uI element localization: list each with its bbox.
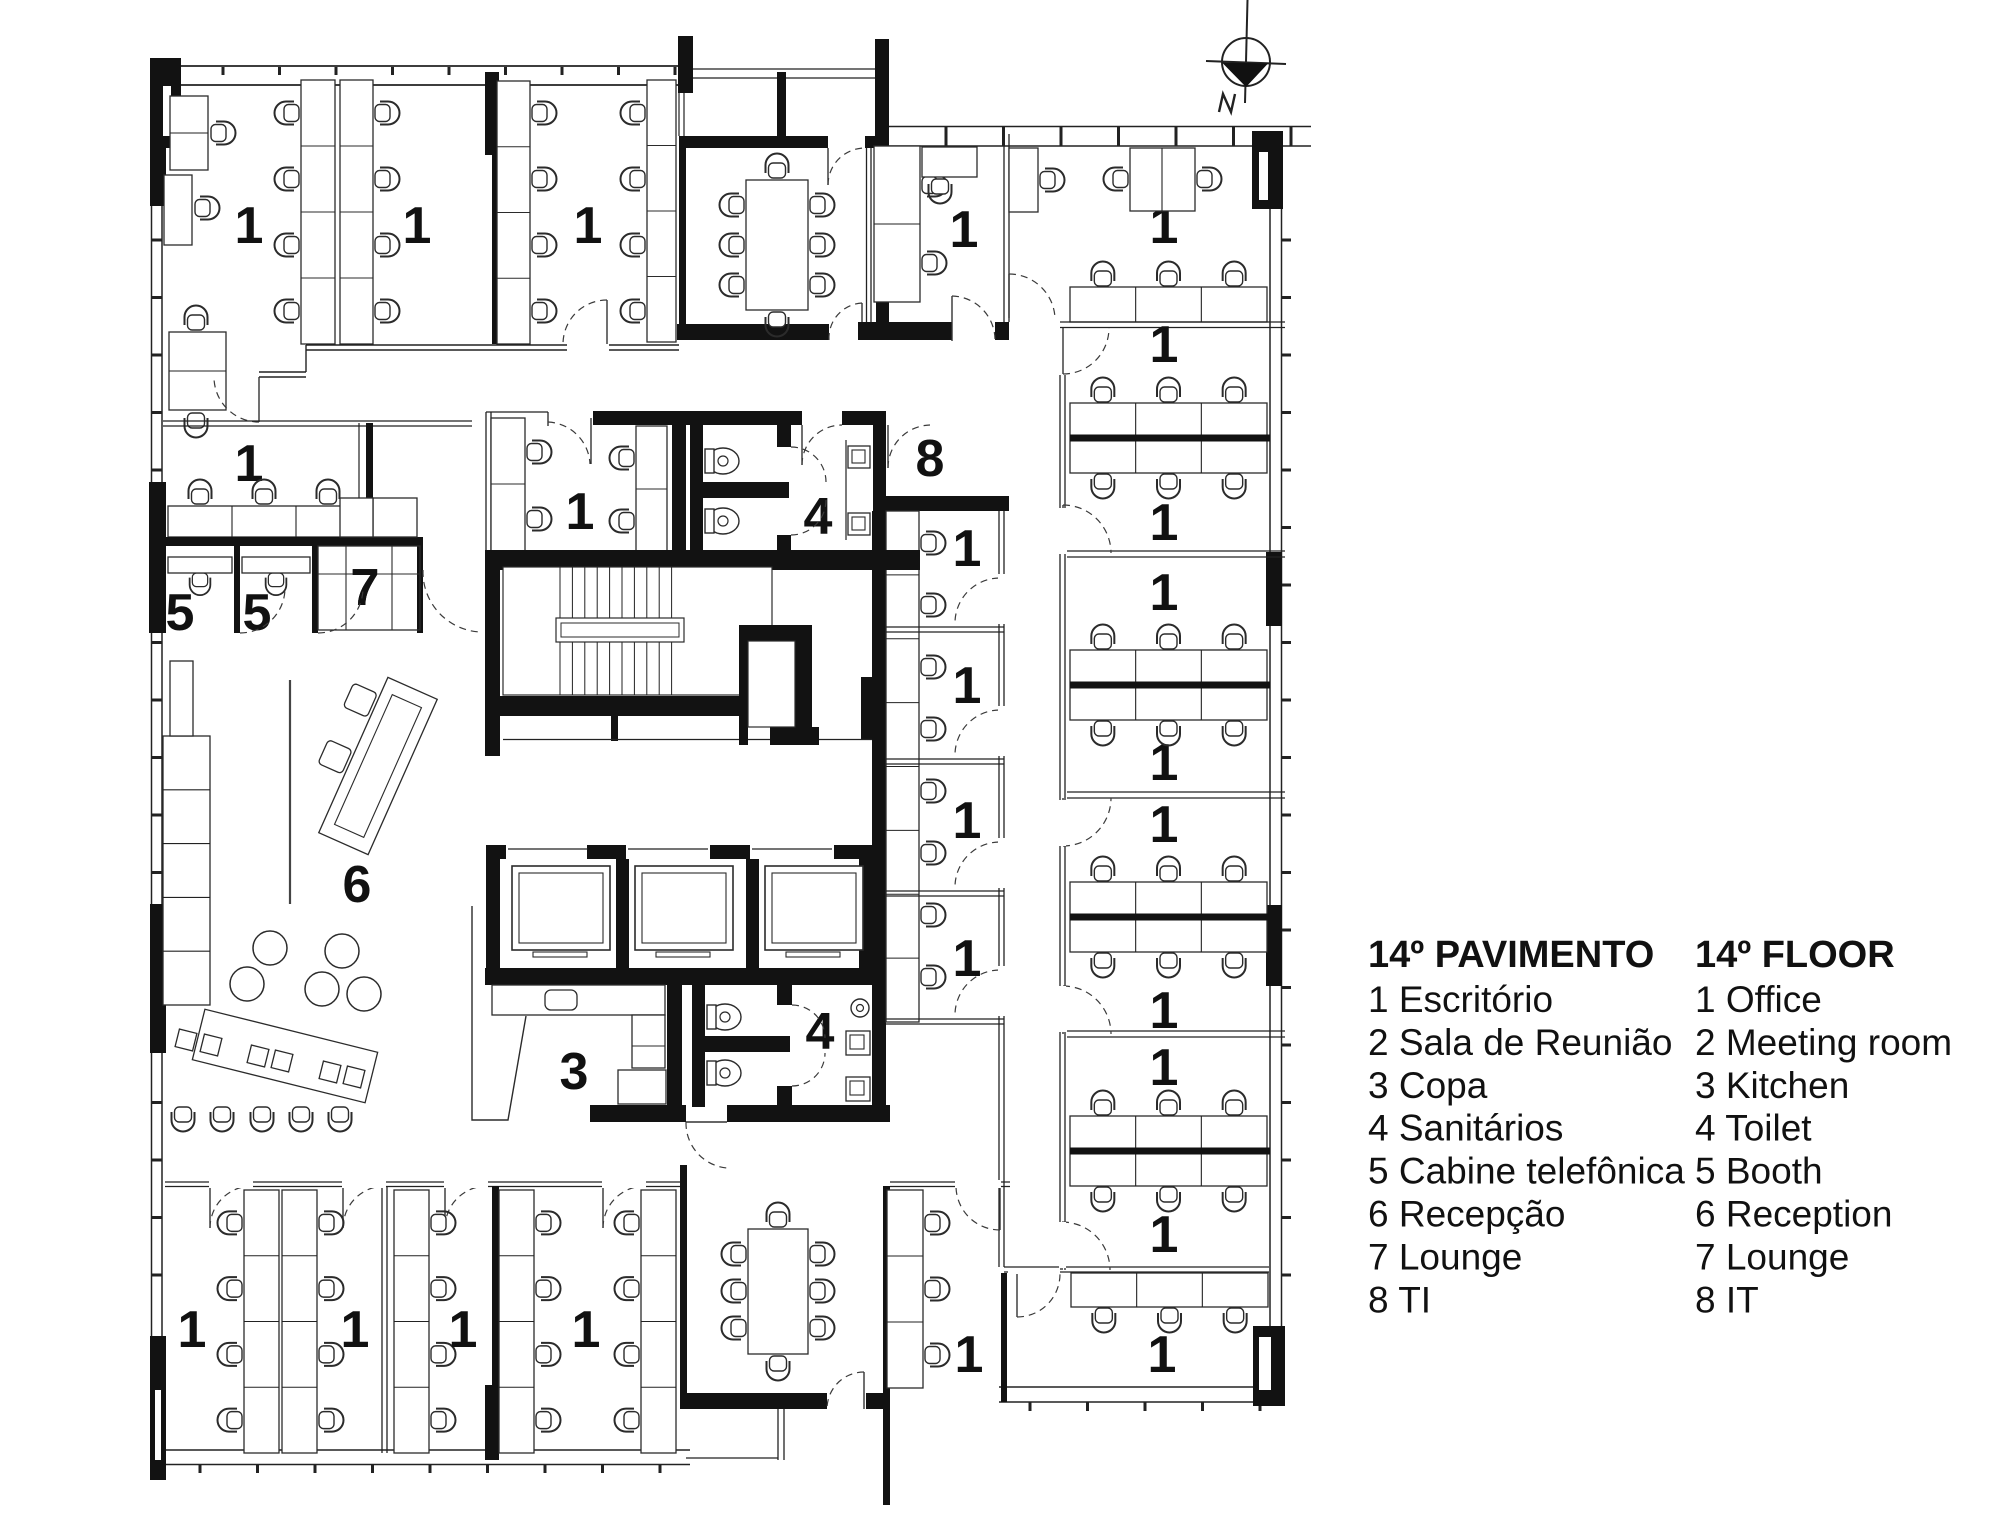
- svg-text:1: 1: [1150, 1206, 1179, 1264]
- svg-text:4 Toilet: 4 Toilet: [1695, 1108, 1812, 1149]
- svg-text:1: 1: [950, 201, 979, 259]
- svg-text:7 Lounge: 7 Lounge: [1695, 1236, 1849, 1277]
- svg-text:1: 1: [235, 197, 264, 255]
- svg-text:1: 1: [1148, 1326, 1177, 1384]
- svg-text:4: 4: [806, 1003, 835, 1061]
- svg-text:14º PAVIMENTO: 14º PAVIMENTO: [1368, 934, 1654, 976]
- svg-text:8: 8: [916, 430, 945, 488]
- svg-text:7 Lounge: 7 Lounge: [1368, 1236, 1522, 1277]
- svg-text:1: 1: [341, 1301, 370, 1359]
- svg-text:1: 1: [178, 1301, 207, 1359]
- svg-text:8 TI: 8 TI: [1368, 1279, 1431, 1320]
- svg-text:1: 1: [572, 1301, 601, 1359]
- svg-text:5: 5: [166, 584, 195, 642]
- svg-text:1: 1: [953, 520, 982, 578]
- svg-text:6 Recepção: 6 Recepção: [1368, 1194, 1565, 1235]
- svg-text:1: 1: [566, 483, 595, 541]
- svg-text:3 Copa: 3 Copa: [1368, 1065, 1488, 1106]
- svg-text:5: 5: [243, 584, 272, 642]
- svg-text:1 Escritório: 1 Escritório: [1368, 979, 1553, 1020]
- svg-text:5 Cabine telefônica: 5 Cabine telefônica: [1368, 1151, 1685, 1192]
- svg-text:4 Sanitários: 4 Sanitários: [1368, 1108, 1563, 1149]
- svg-text:2 Meeting room: 2 Meeting room: [1695, 1022, 1952, 1063]
- svg-text:3: 3: [560, 1043, 589, 1101]
- svg-text:8 IT: 8 IT: [1695, 1279, 1759, 1320]
- svg-text:5 Booth: 5 Booth: [1695, 1151, 1823, 1192]
- svg-text:1: 1: [953, 930, 982, 988]
- svg-text:6 Reception: 6 Reception: [1695, 1194, 1892, 1235]
- svg-text:1 Office: 1 Office: [1695, 979, 1822, 1020]
- svg-text:2 Sala de Reunião: 2 Sala de Reunião: [1368, 1022, 1672, 1063]
- svg-text:1: 1: [1150, 564, 1179, 622]
- svg-text:1: 1: [1150, 1039, 1179, 1097]
- svg-text:1: 1: [953, 792, 982, 850]
- svg-text:1: 1: [235, 435, 264, 493]
- svg-text:1: 1: [1150, 316, 1179, 374]
- svg-text:1: 1: [953, 657, 982, 715]
- svg-text:1: 1: [403, 197, 432, 255]
- svg-text:6: 6: [343, 856, 372, 914]
- svg-text:1: 1: [955, 1326, 984, 1384]
- svg-text:7: 7: [351, 559, 380, 617]
- svg-text:1: 1: [1150, 796, 1179, 854]
- svg-text:3 Kitchen: 3 Kitchen: [1695, 1065, 1849, 1106]
- svg-text:14º FLOOR: 14º FLOOR: [1695, 934, 1895, 976]
- svg-text:1: 1: [449, 1301, 478, 1359]
- svg-text:1: 1: [574, 197, 603, 255]
- svg-text:1: 1: [1150, 734, 1179, 792]
- svg-text:1: 1: [1150, 494, 1179, 552]
- svg-text:4: 4: [804, 488, 833, 546]
